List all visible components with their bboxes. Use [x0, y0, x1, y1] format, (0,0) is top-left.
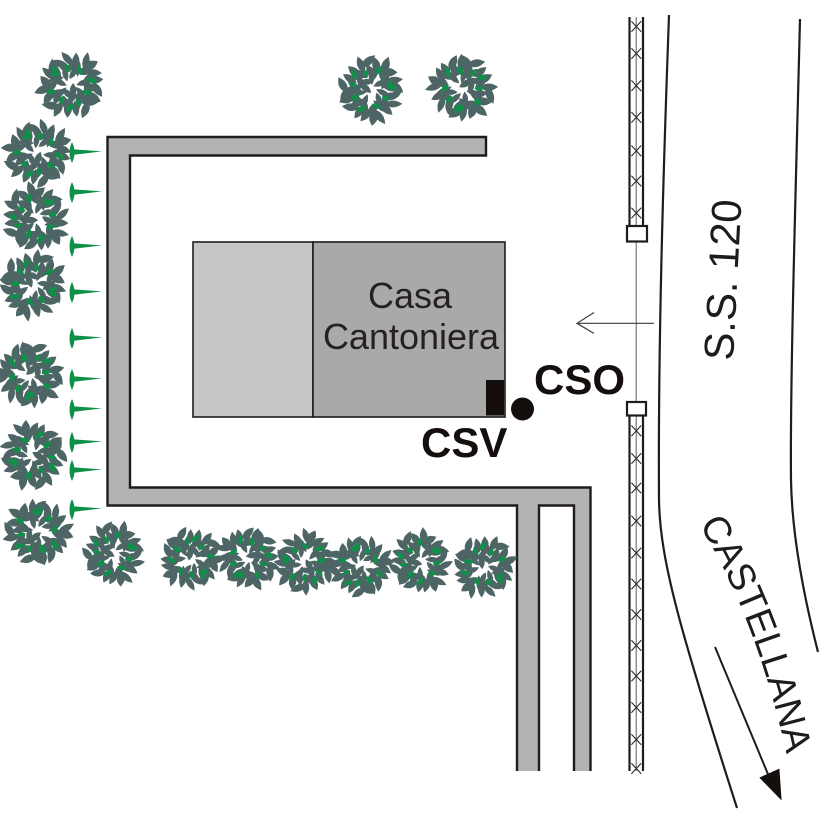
- svg-text:CSO: CSO: [534, 356, 625, 403]
- svg-text:S.S. 120: S.S. 120: [695, 198, 750, 361]
- svg-text:Casa: Casa: [368, 275, 453, 316]
- svg-text:Cantoniera: Cantoniera: [323, 316, 500, 357]
- svg-text:CSV: CSV: [421, 419, 507, 466]
